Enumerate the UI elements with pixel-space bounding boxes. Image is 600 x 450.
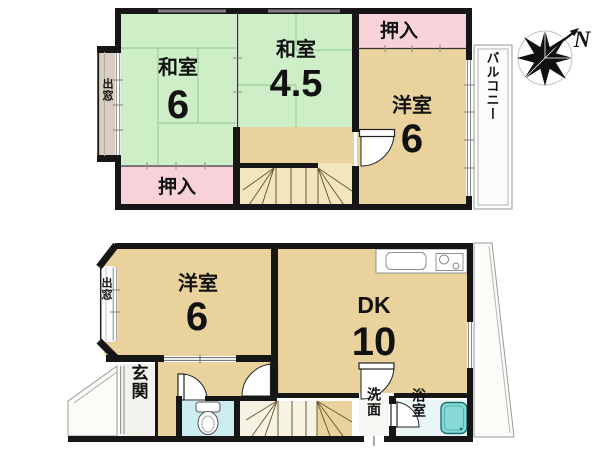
- compass-rose: N: [517, 27, 592, 86]
- floorplan-svg: 和室 6 和室 4.5 押入 洋室 6 押入 バルコニー 出窓: [0, 0, 600, 450]
- entrance-porch: [68, 366, 117, 436]
- label-youshitsu-2f: 洋室: [392, 93, 432, 117]
- label-washitsu45-size: 4.5: [270, 63, 323, 105]
- label-dk: DK: [357, 292, 391, 318]
- kitchen-counter: [376, 249, 467, 273]
- floorplan-image: 和室 6 和室 4.5 押入 洋室 6 押入 バルコニー 出窓: [0, 0, 600, 450]
- label-bathroom: 浴室: [411, 387, 427, 418]
- label-closet-top: 押入: [380, 19, 418, 42]
- floor-1f: 洋室 6 DK 10 玄関 洗面 浴室 出窓: [68, 243, 514, 446]
- label-youshitsu-1f: 洋室: [178, 271, 218, 295]
- hall-2f-floor: [238, 127, 354, 167]
- label-entrance: 玄関: [129, 363, 149, 400]
- compass-north-label: N: [573, 27, 592, 52]
- bay-window-2f-floor: [99, 50, 115, 157]
- label-youshitsu-1f-size: 6: [186, 295, 208, 339]
- label-washroom: 洗面: [366, 386, 382, 417]
- terrace: [474, 243, 514, 437]
- toilet-fixture: [196, 402, 220, 435]
- label-washitsu6-size: 6: [167, 83, 189, 127]
- kitchen-sink: [386, 253, 426, 270]
- label-dk-size: 10: [352, 320, 397, 364]
- floor-2f: 和室 6 和室 4.5 押入 洋室 6 押入 バルコニー 出窓: [97, 8, 512, 210]
- label-bay-window-1f: 出窓: [100, 276, 113, 301]
- label-closet-bottom: 押入: [158, 175, 196, 198]
- label-washitsu6: 和室: [158, 55, 198, 79]
- label-bay-window-2f: 出窓: [101, 77, 114, 102]
- label-washitsu45: 和室: [276, 37, 316, 61]
- label-youshitsu-2f-size: 6: [401, 117, 423, 161]
- compass-north-arrow: [553, 33, 573, 48]
- bathtub: [441, 403, 467, 434]
- stairs-2f-floor: [238, 163, 352, 206]
- label-balcony: バルコニー: [485, 51, 500, 121]
